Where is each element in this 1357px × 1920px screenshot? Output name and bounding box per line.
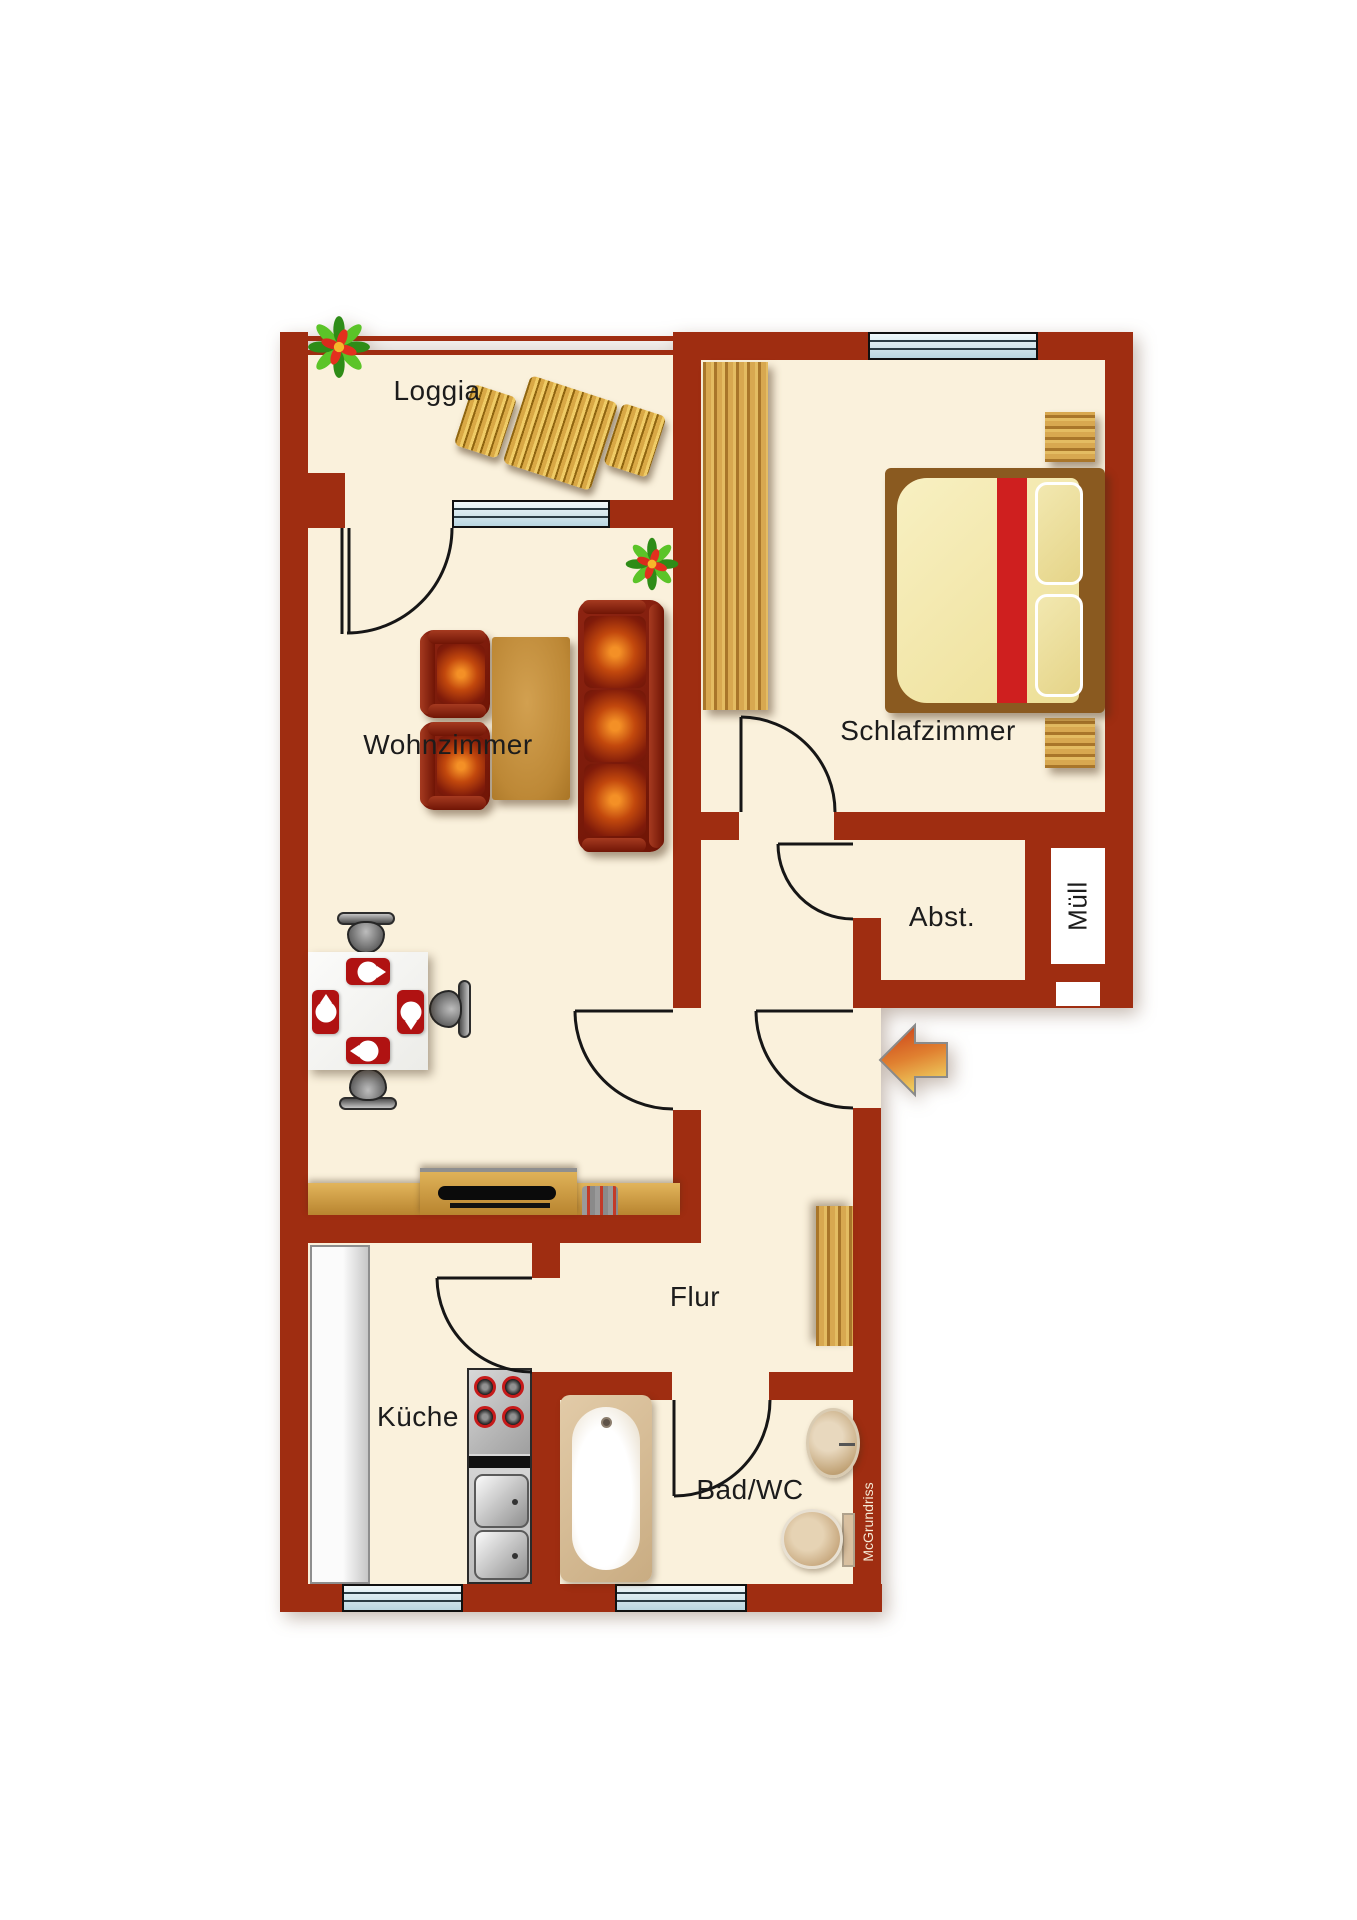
loggia-door [342,528,452,634]
entrance-door [756,1011,853,1108]
kueche-door [437,1278,532,1372]
abstellraum-door [778,844,853,919]
room-label-loggia: Loggia [393,375,480,407]
page: { "floorplan": { "watermark": "McGrundri… [0,0,1357,1920]
room-label-wohnzimmer: Wohnzimmer [363,729,532,761]
room-label-bad: Bad/WC [696,1474,803,1506]
room-label-abstellraum: Abst. [909,901,975,933]
room-label-kueche: Küche [377,1401,459,1433]
room-label-muell: Müll [1063,881,1094,931]
room-label-flur: Flur [670,1281,720,1313]
wohnzimmer-door [575,1011,673,1109]
doors-overlay [0,0,1357,1920]
room-label-schlafzimmer: Schlafzimmer [840,715,1016,747]
watermark: McGrundriss [860,1482,876,1561]
schlafzimmer-door [741,717,835,812]
entrance-arrow [880,1025,947,1095]
floor-plan: Loggia Schlafzimmer Wohnzimmer Abst. Mül… [0,0,1357,1920]
